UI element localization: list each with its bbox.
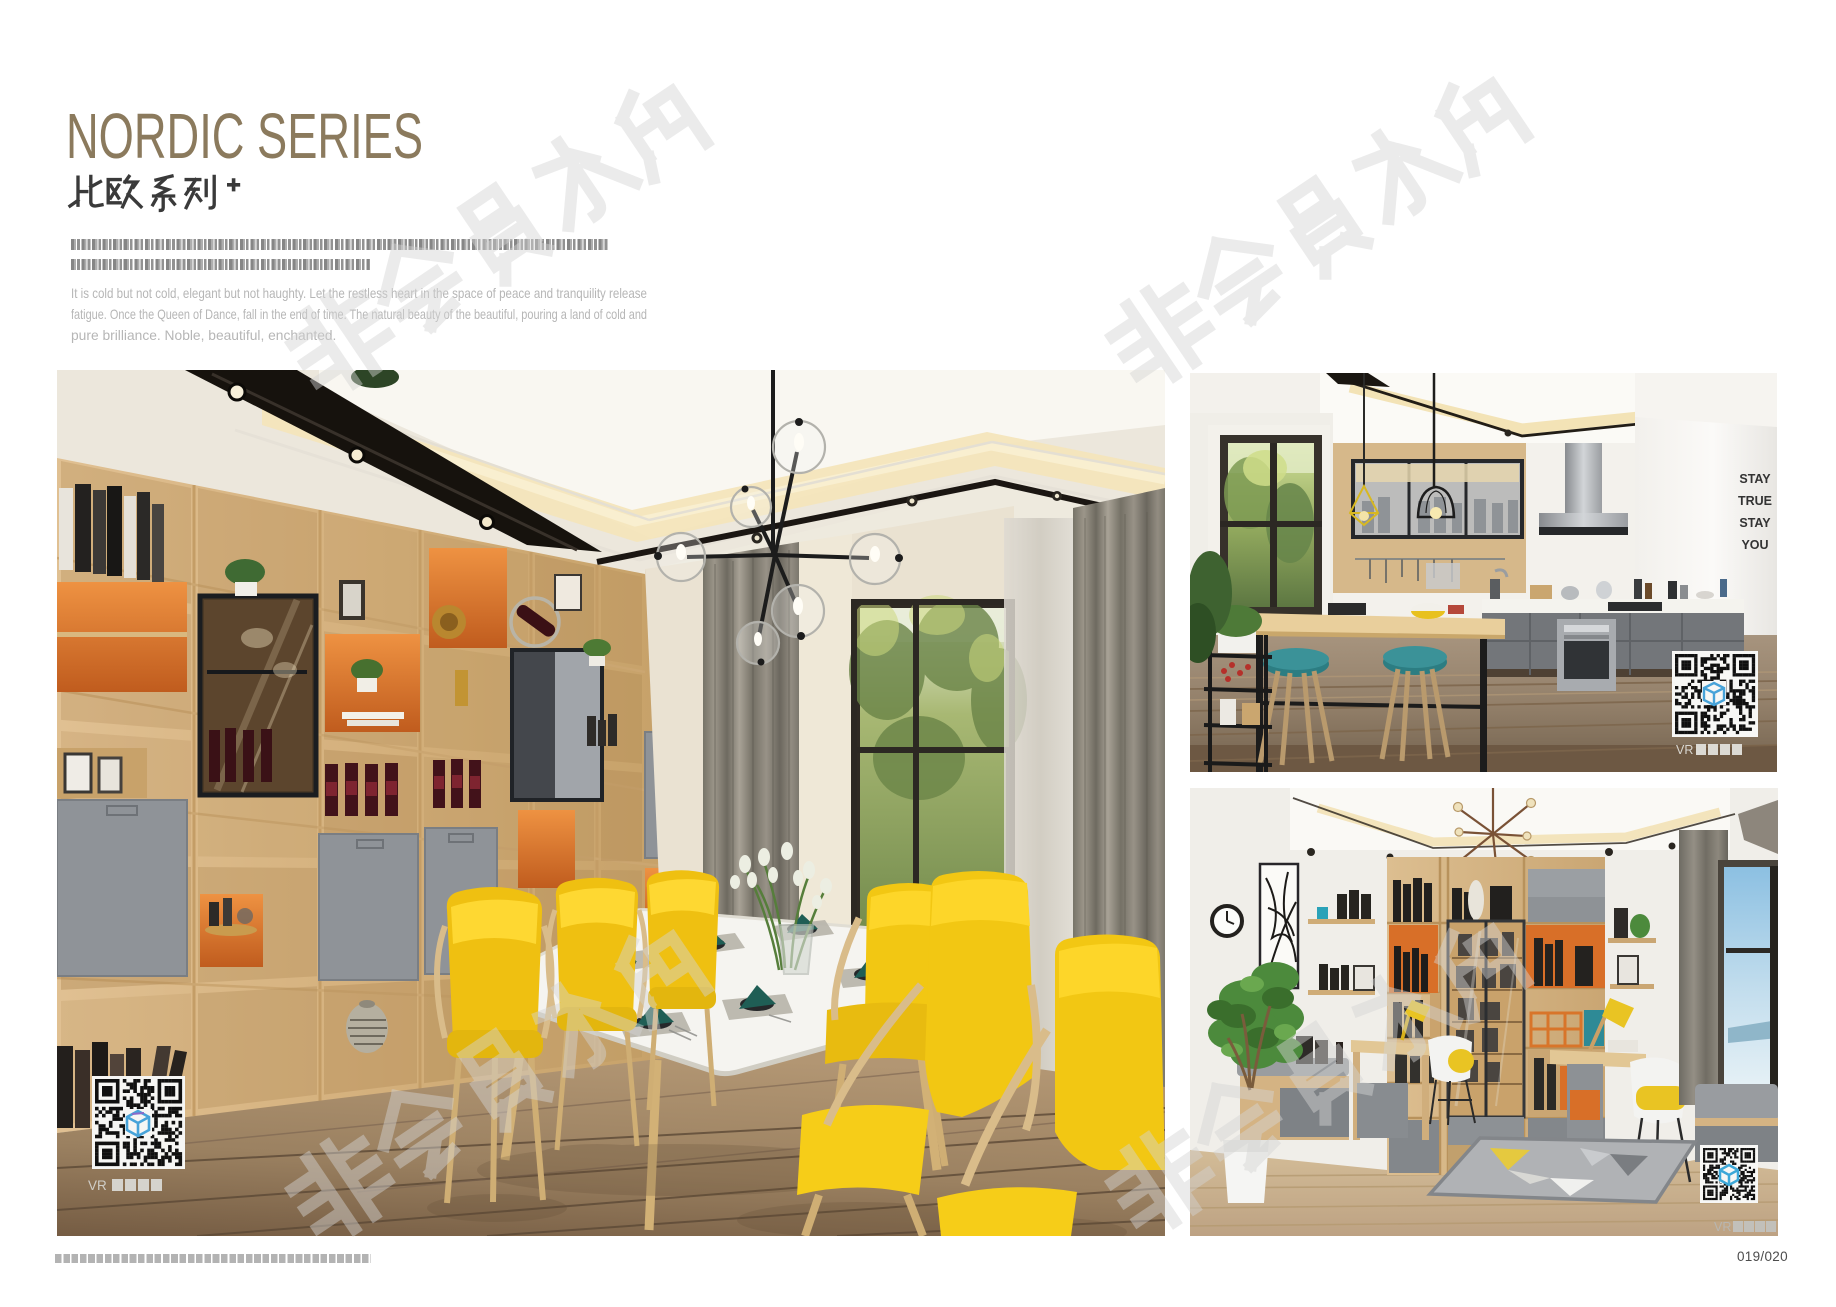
svg-text:VR: VR <box>1714 1220 1731 1234</box>
svg-text:YOU: YOU <box>1741 538 1768 552</box>
svg-text:pure brilliance. Noble, beauti: pure brilliance. Noble, beautiful, encha… <box>71 328 336 343</box>
svg-text:VR: VR <box>88 1178 107 1193</box>
svg-text:STAY: STAY <box>1739 472 1771 486</box>
svg-text:STAY: STAY <box>1739 516 1771 530</box>
svg-text:VR: VR <box>1676 743 1693 757</box>
svg-text:TRUE: TRUE <box>1738 494 1772 508</box>
svg-text:fatigue. Once the Queen of Dan: fatigue. Once the Queen of Dance, fall i… <box>71 307 647 322</box>
svg-text:It is cold but not cold, elega: It is cold but not cold, elegant but not… <box>71 286 647 301</box>
svg-text:NORDIC SERIES: NORDIC SERIES <box>66 100 423 172</box>
